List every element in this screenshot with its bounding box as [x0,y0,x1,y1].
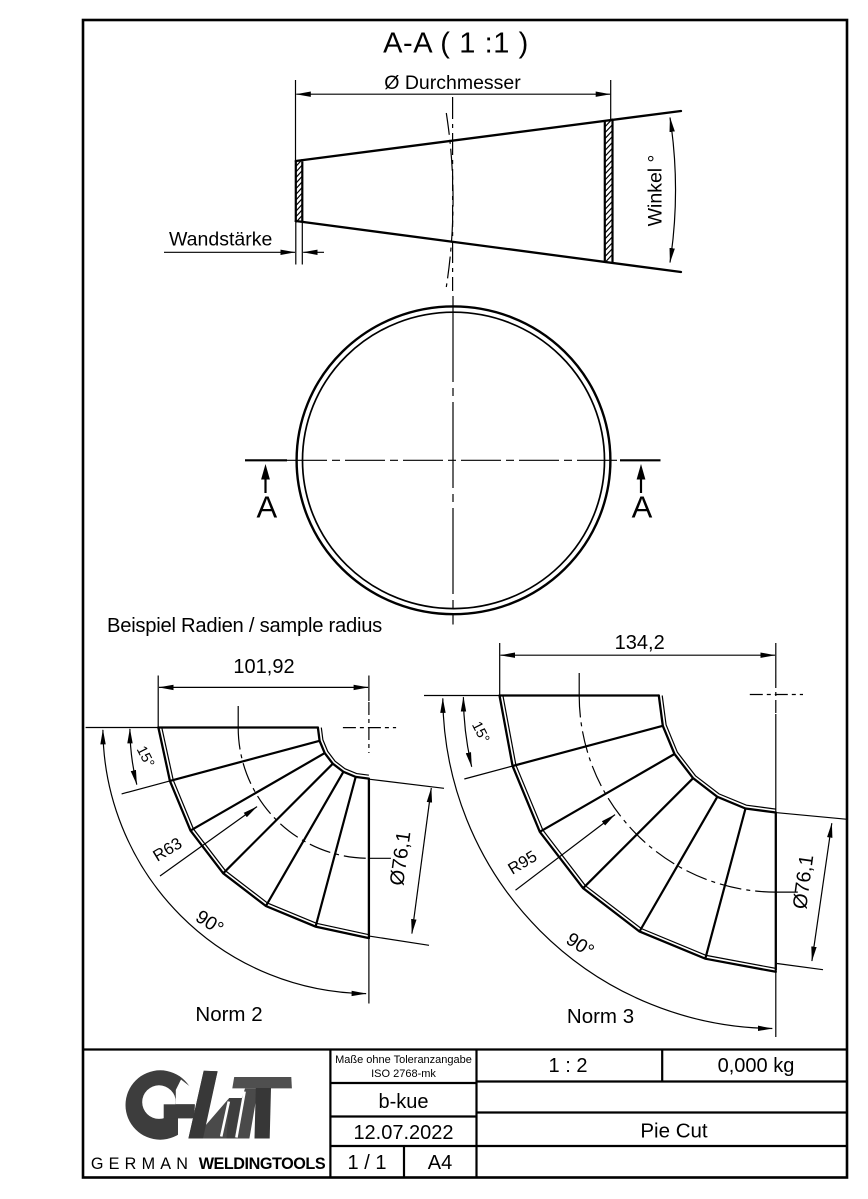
svg-text:b-kue: b-kue [378,1091,428,1113]
svg-text:134,2: 134,2 [615,632,665,654]
svg-text:A: A [632,490,653,525]
svg-text:Pie Cut: Pie Cut [640,1120,708,1143]
svg-text:Maße ohne Toleranzangabe: Maße ohne Toleranzangabe [335,1054,472,1066]
svg-text:Norm 2: Norm 2 [195,1003,262,1026]
svg-text:Winkel °: Winkel ° [645,155,667,227]
svg-text:1 : 2: 1 : 2 [549,1055,588,1077]
svg-text:101,92: 101,92 [233,656,294,678]
svg-text:A-A ( 1 :1 ): A-A ( 1 :1 ) [383,28,529,60]
svg-text:12.07.2022: 12.07.2022 [353,1122,453,1144]
svg-text:Ø Durchmesser: Ø Durchmesser [384,72,521,94]
svg-text:1 / 1: 1 / 1 [348,1152,387,1174]
svg-text:0,000 kg: 0,000 kg [718,1055,795,1077]
svg-text:A: A [256,490,277,525]
svg-text:ISO 2768-mk: ISO 2768-mk [371,1068,436,1080]
svg-text:A4: A4 [428,1152,452,1174]
svg-text:Wandstärke: Wandstärke [169,229,272,251]
svg-text:Beispiel Radien / sample radiu: Beispiel Radien / sample radius [107,615,382,637]
svg-text:WELDINGTOOLS: WELDINGTOOLS [199,1155,326,1173]
svg-text:GERMAN: GERMAN [91,1155,193,1173]
svg-text:Norm 3: Norm 3 [567,1005,634,1028]
